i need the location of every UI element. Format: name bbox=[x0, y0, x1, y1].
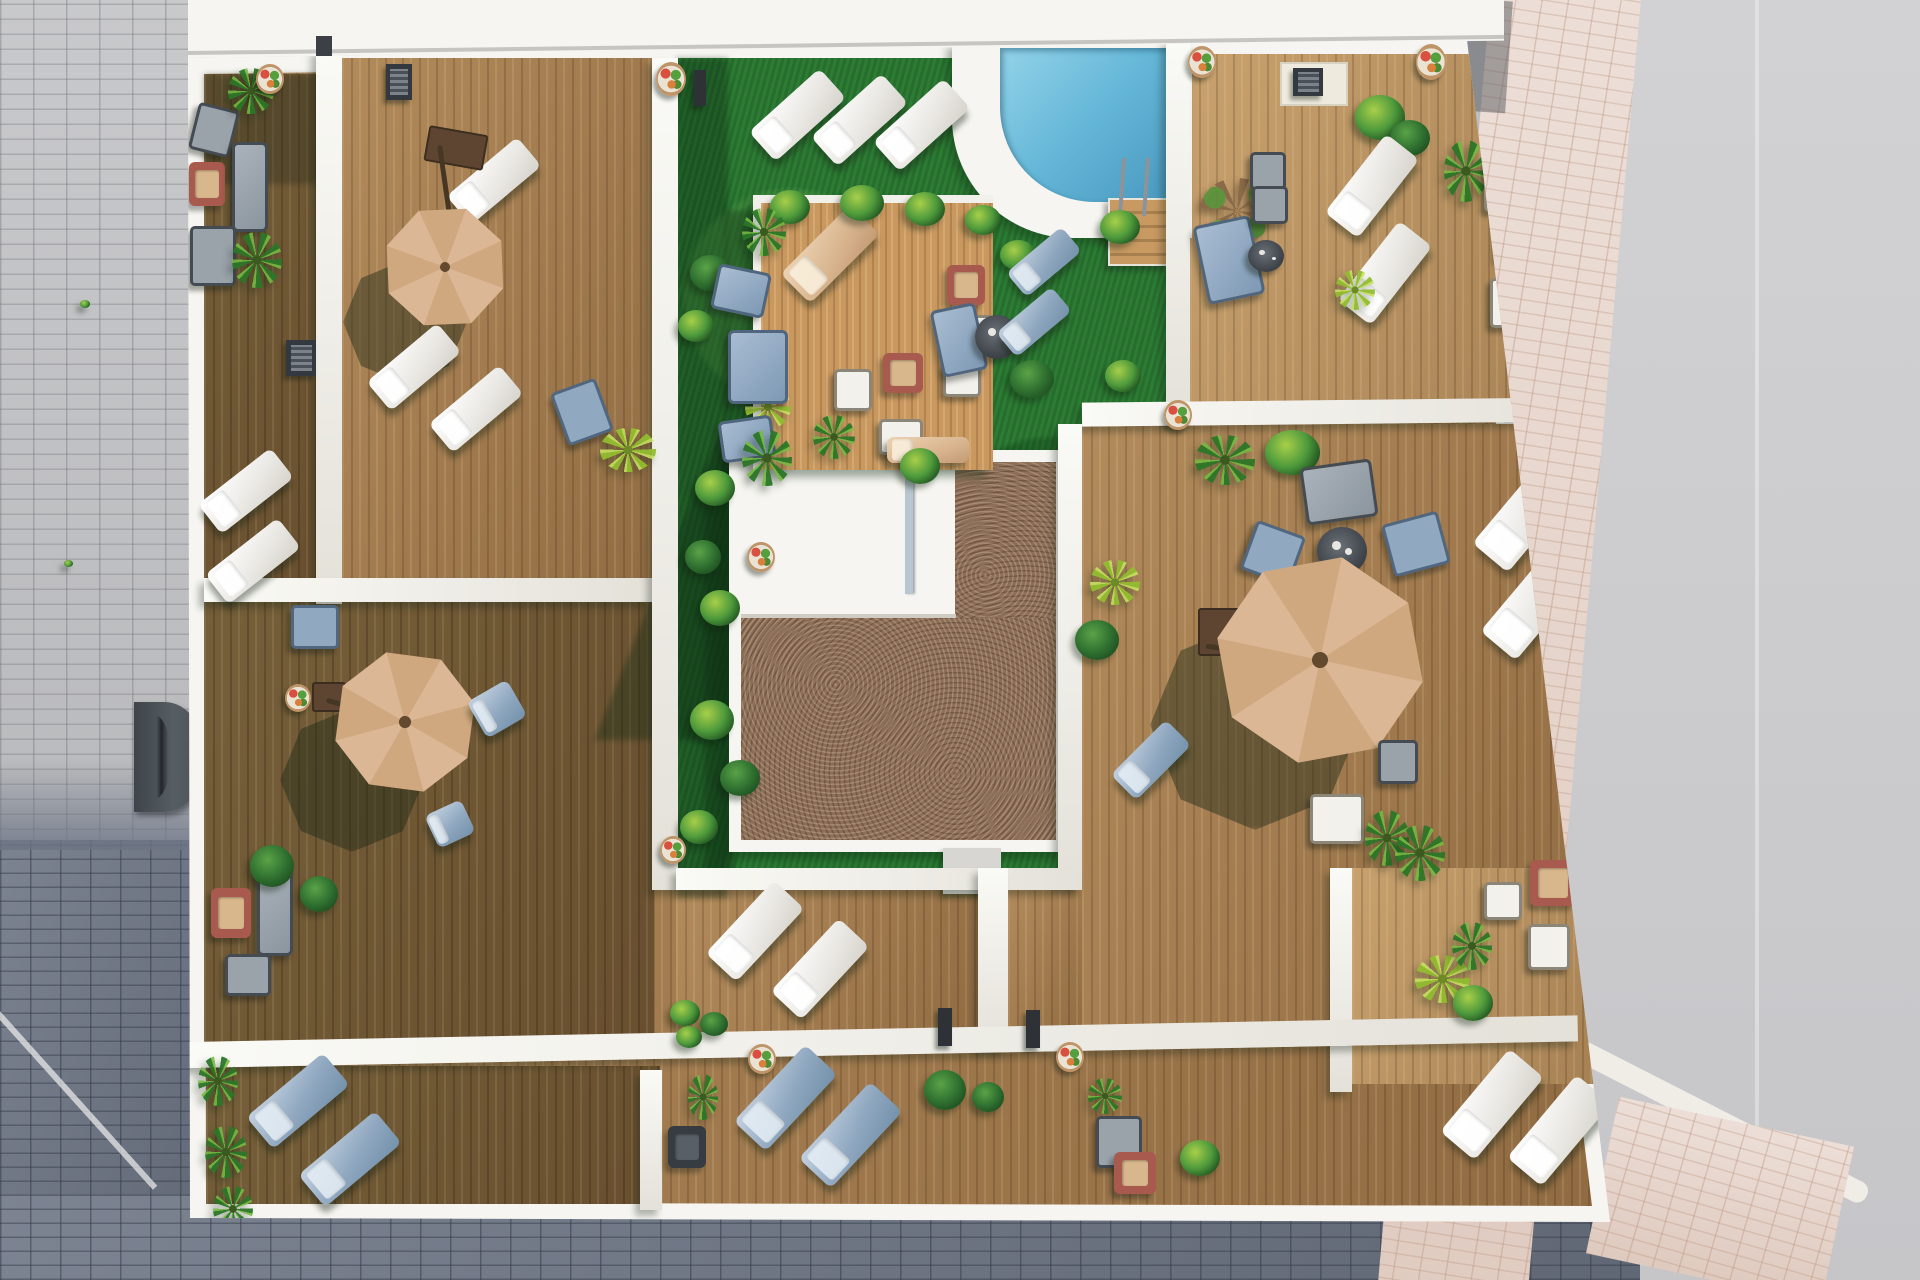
garden-bush bbox=[685, 540, 721, 574]
gravel-roof-bottom bbox=[741, 618, 1056, 840]
topiary bbox=[972, 1082, 1004, 1112]
lounge-seat bbox=[1310, 794, 1364, 844]
palm-plant bbox=[205, 1126, 247, 1178]
topiary bbox=[250, 845, 294, 887]
flower-pot bbox=[285, 684, 311, 712]
topiary bbox=[300, 876, 338, 912]
flower-pot bbox=[1188, 46, 1216, 78]
barbecue-grill bbox=[386, 64, 412, 100]
palm-plant bbox=[688, 1074, 718, 1120]
coffee-table bbox=[1248, 240, 1284, 272]
parapet-wall-bottom-divider bbox=[640, 1070, 662, 1210]
rooftop-render bbox=[0, 0, 1920, 1280]
garden-bush bbox=[690, 700, 734, 740]
platform-fire-table bbox=[883, 353, 923, 393]
fire-table bbox=[1114, 1152, 1156, 1194]
bush bbox=[670, 1000, 700, 1026]
building-rooftop bbox=[185, 40, 1615, 1235]
garden-bush bbox=[905, 192, 945, 226]
platform-palm bbox=[813, 415, 855, 459]
parapet-wall-south-divider bbox=[978, 868, 1008, 1050]
flower-pot bbox=[660, 836, 686, 864]
lamp-post bbox=[1026, 1010, 1040, 1048]
flower-pot bbox=[256, 64, 284, 94]
street-weed bbox=[64, 560, 73, 567]
platform-seat bbox=[834, 369, 872, 411]
garden-bush bbox=[1100, 210, 1140, 244]
garden-bush bbox=[700, 590, 740, 626]
flower-pot bbox=[656, 62, 686, 96]
armchair bbox=[190, 226, 236, 286]
bush bbox=[1453, 985, 1493, 1021]
lamp-post bbox=[694, 70, 706, 106]
side-table bbox=[1378, 740, 1418, 784]
parapet-wall-garden-south bbox=[676, 868, 1082, 890]
armchair bbox=[1252, 186, 1288, 224]
bush bbox=[1075, 620, 1119, 660]
barbecue-grill bbox=[286, 340, 316, 376]
lamp-post bbox=[938, 1008, 952, 1046]
fire-table bbox=[189, 162, 225, 206]
sofa bbox=[1299, 458, 1378, 525]
garden-bush bbox=[678, 310, 714, 342]
palm-plant bbox=[198, 1056, 238, 1106]
palm-plant bbox=[1195, 435, 1255, 485]
flower-pot bbox=[1056, 1042, 1084, 1072]
palm-plant bbox=[232, 232, 282, 288]
garden-bush bbox=[720, 760, 760, 796]
armchair bbox=[1250, 152, 1286, 190]
garden-bush bbox=[1010, 360, 1054, 398]
roof-vent bbox=[316, 36, 332, 56]
parapet-wall-ab-f bbox=[204, 578, 654, 602]
barbecue-grill bbox=[1293, 68, 1323, 96]
sofa bbox=[232, 142, 268, 232]
flower-pot bbox=[1416, 44, 1446, 80]
garden-bush bbox=[965, 205, 1001, 235]
street-right-seam bbox=[1755, 0, 1759, 1280]
garden-bush bbox=[680, 810, 718, 844]
bush bbox=[700, 1012, 728, 1036]
palm-plant bbox=[742, 208, 786, 256]
garden-bush bbox=[900, 448, 940, 484]
palm-plant bbox=[742, 430, 792, 486]
parapet-wall-se-divider bbox=[1330, 868, 1352, 1092]
palm-plant bbox=[1335, 270, 1375, 310]
palm-plant bbox=[1452, 922, 1492, 970]
parapet-wall-garden-left bbox=[652, 58, 678, 890]
garden-sofa bbox=[728, 330, 788, 404]
garden-bush bbox=[840, 185, 884, 221]
palm-plant bbox=[1090, 560, 1140, 605]
palm-plant bbox=[600, 428, 656, 472]
garden-bush bbox=[1105, 360, 1141, 392]
bush bbox=[1180, 1140, 1220, 1176]
flower-pot bbox=[747, 542, 775, 572]
parapet-wall-a-b bbox=[316, 48, 342, 604]
armchair bbox=[291, 605, 339, 649]
fire-table bbox=[668, 1126, 706, 1168]
armchair bbox=[1528, 924, 1570, 970]
parapet-wall-garden-e bbox=[1058, 424, 1082, 886]
core-edge-line bbox=[741, 614, 956, 618]
palm-plant bbox=[1395, 825, 1445, 881]
topiary bbox=[924, 1070, 966, 1110]
armchair bbox=[225, 954, 271, 996]
platform-fire-table bbox=[947, 265, 985, 305]
fire-table bbox=[211, 888, 251, 938]
garden-bush bbox=[695, 470, 735, 506]
lounge-seat bbox=[1484, 882, 1522, 920]
bush bbox=[676, 1026, 702, 1048]
flower-pot bbox=[748, 1044, 776, 1074]
street-weed bbox=[80, 300, 90, 308]
parapet-wall-garden-right bbox=[1166, 40, 1190, 424]
palm-plant bbox=[1088, 1078, 1122, 1114]
flower-pot bbox=[1164, 400, 1192, 430]
